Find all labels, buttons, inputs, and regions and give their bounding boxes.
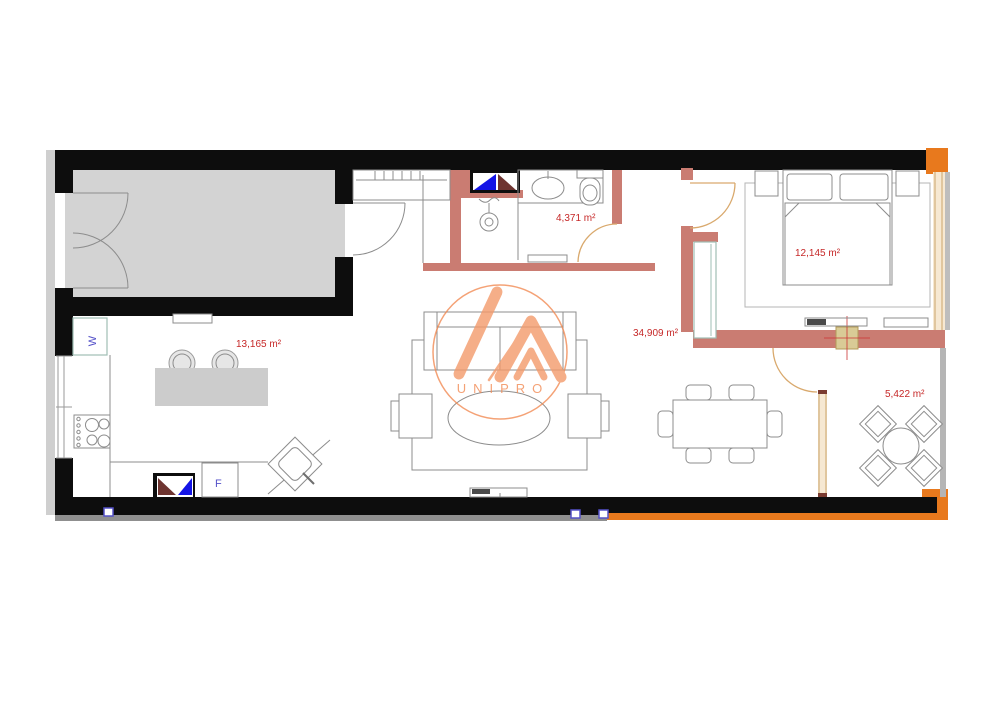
nightstand-right	[896, 171, 919, 196]
wall-left-middle	[55, 288, 73, 356]
garage-floor	[65, 168, 345, 298]
washer-label: W	[87, 335, 99, 346]
window-bedroom-right	[933, 172, 950, 330]
wardrobe-cap	[688, 232, 718, 242]
bedroom-wardrobe	[694, 242, 716, 338]
wall-top	[55, 150, 932, 170]
glass-partition-terrace	[818, 390, 827, 497]
bedroom-partition-bottom	[693, 330, 945, 348]
garage-wall-right-upper	[335, 168, 353, 204]
room-label-bathroom: 4,371 m²	[556, 213, 596, 224]
dishwasher-symbol	[153, 473, 195, 500]
kitchen-island	[155, 368, 268, 406]
anchor-marker	[599, 510, 608, 518]
window-left	[55, 356, 73, 458]
dining-chair	[686, 385, 711, 400]
room-label-living: 34,909 m²	[633, 328, 679, 339]
nightstand-left	[755, 171, 778, 196]
room-label-terrace: 5,422 m²	[885, 389, 925, 400]
wall-left-upper	[55, 150, 73, 193]
dining-chair	[729, 448, 754, 463]
fridge-label: F	[215, 478, 222, 490]
terrace-table	[883, 428, 919, 464]
dining-table	[673, 400, 767, 448]
double-bed	[783, 170, 892, 285]
corner-accent-top-right	[926, 148, 948, 174]
bedroom-partition-stub	[681, 168, 693, 180]
pillow-left	[787, 174, 832, 200]
dining-chair	[658, 411, 673, 437]
room-label-bedroom: 12,145 m²	[795, 248, 841, 259]
anchor-marker	[571, 510, 580, 518]
bath-partition-right	[612, 170, 622, 224]
bath-washer-symbol	[470, 170, 520, 193]
dining-chair	[729, 385, 754, 400]
toilet	[577, 170, 603, 205]
stove	[74, 415, 110, 448]
anchor-marker	[104, 508, 113, 516]
dining-chair	[686, 448, 711, 463]
bottom-wall-shadow	[55, 515, 607, 521]
floor-plan-drawing: UNIPRO 13,165 m² 4,371 m² 34,909 m² 12,1…	[0, 0, 1000, 707]
armchair-right	[568, 394, 609, 438]
dining-chair	[767, 411, 782, 437]
floor-plan-page: UNIPRO 13,165 m² 4,371 m² 34,909 m² 12,1…	[0, 0, 1000, 707]
pillow-right	[840, 174, 888, 200]
room-label-kitchen: 13,165 m²	[236, 339, 282, 350]
terrace-orange-strip	[607, 513, 948, 520]
bath-partition-bottom	[423, 263, 655, 271]
watermark-brand-text: UNIPRO	[457, 381, 550, 396]
kitchen-vent	[173, 314, 212, 323]
bath-partition-left	[450, 170, 461, 270]
left-wall-shadow	[46, 150, 55, 515]
armchair-left	[391, 394, 432, 438]
garage-wall-bottom	[73, 297, 353, 316]
garage-wall-right-lower	[335, 257, 353, 298]
